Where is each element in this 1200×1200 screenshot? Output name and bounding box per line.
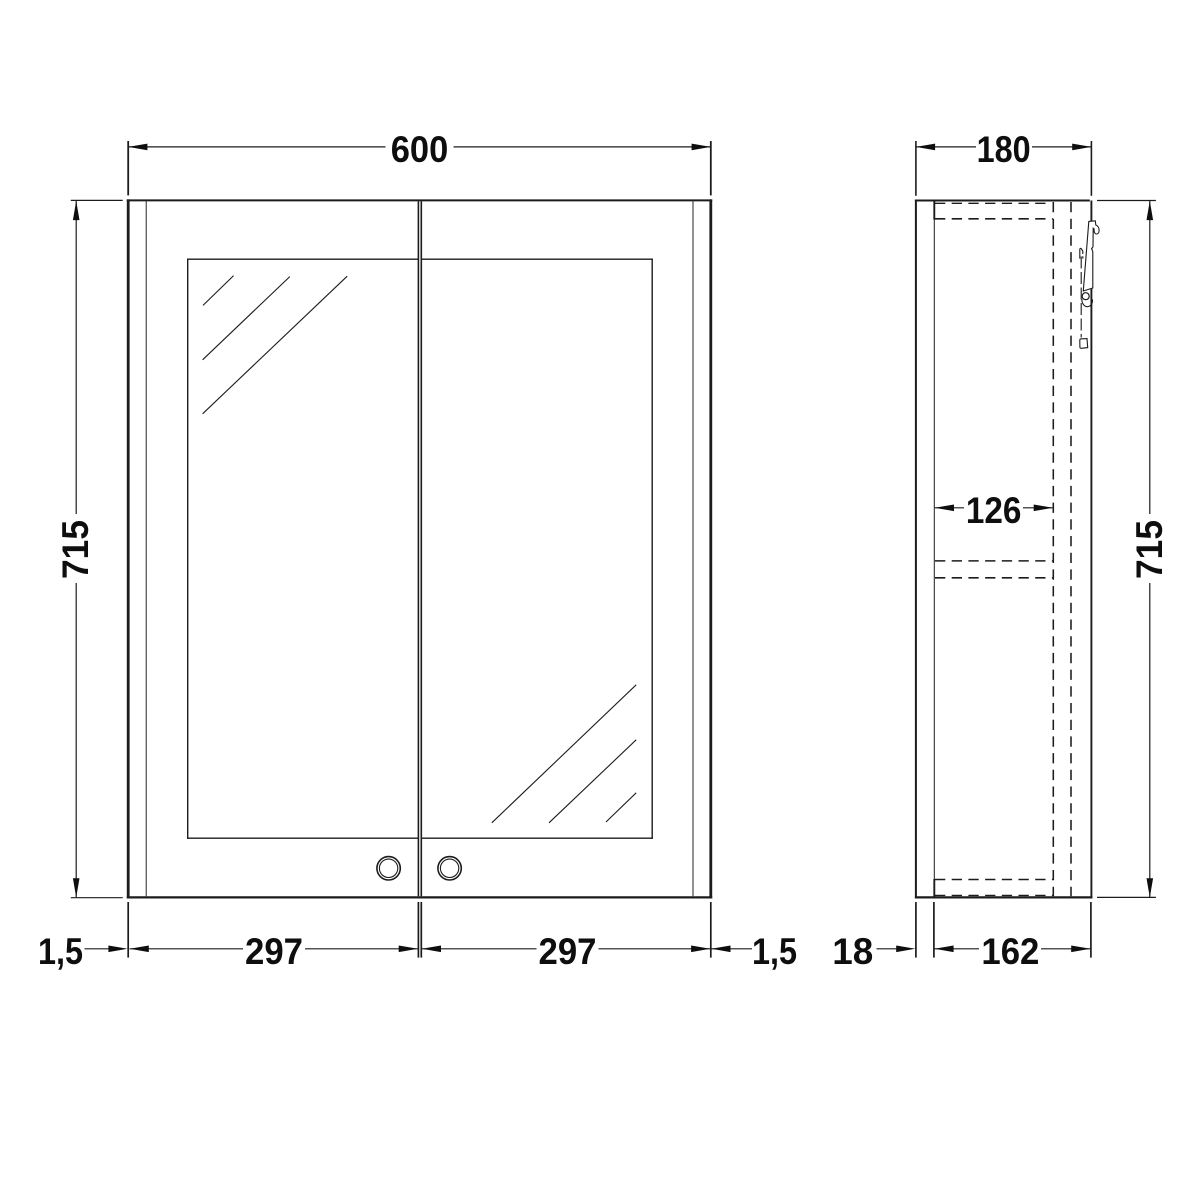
svg-text:180: 180 [977, 128, 1031, 170]
svg-text:1,5: 1,5 [38, 930, 83, 972]
svg-text:715: 715 [1128, 520, 1170, 579]
svg-text:297: 297 [245, 930, 303, 972]
svg-text:1,5: 1,5 [752, 930, 797, 972]
svg-text:126: 126 [966, 489, 1022, 531]
svg-text:162: 162 [981, 930, 1039, 972]
svg-text:715: 715 [54, 520, 96, 579]
svg-text:18: 18 [832, 930, 873, 972]
svg-text:600: 600 [391, 128, 449, 170]
svg-text:297: 297 [539, 930, 597, 972]
